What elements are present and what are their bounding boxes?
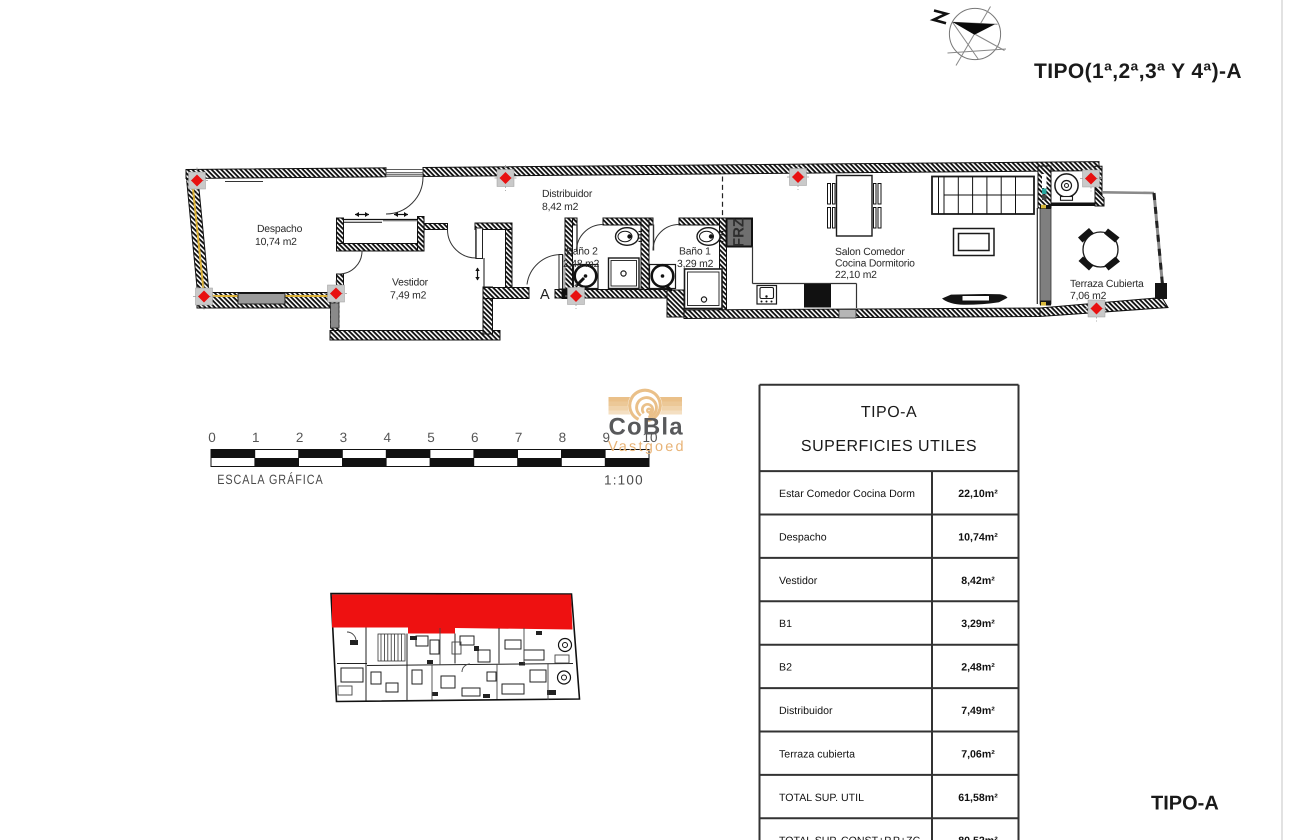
svg-text:2: 2 bbox=[296, 430, 304, 445]
svg-text:Baño 1: Baño 1 bbox=[679, 247, 711, 258]
svg-text:8: 8 bbox=[559, 430, 567, 445]
svg-text:7,49m²: 7,49m² bbox=[961, 705, 995, 717]
svg-text:B2: B2 bbox=[779, 662, 792, 674]
svg-text:6: 6 bbox=[471, 430, 479, 445]
svg-text:Cocina Dormitorio: Cocina Dormitorio bbox=[835, 259, 915, 270]
svg-text:SUPERFICIES UTILES: SUPERFICIES UTILES bbox=[801, 438, 977, 455]
svg-text:3,29 m2: 3,29 m2 bbox=[677, 259, 714, 270]
svg-text:B1: B1 bbox=[779, 618, 792, 630]
svg-text:FRZ: FRZ bbox=[731, 218, 748, 247]
svg-text:1:100: 1:100 bbox=[604, 473, 644, 488]
svg-text:Salon Comedor: Salon Comedor bbox=[835, 247, 905, 258]
svg-text:A: A bbox=[540, 287, 550, 303]
svg-text:2,48m²: 2,48m² bbox=[961, 662, 995, 674]
svg-text:TIPO-A: TIPO-A bbox=[861, 404, 917, 421]
svg-text:3: 3 bbox=[340, 430, 348, 445]
svg-text:4: 4 bbox=[383, 430, 391, 445]
svg-text:TIPO-A: TIPO-A bbox=[1151, 793, 1219, 815]
svg-text:7: 7 bbox=[515, 430, 523, 445]
svg-text:Baño 2: Baño 2 bbox=[566, 247, 598, 258]
svg-text:TIPO(1ª,2ª,3ª Y 4ª)-A: TIPO(1ª,2ª,3ª Y 4ª)-A bbox=[1034, 60, 1242, 83]
svg-text:3,29m²: 3,29m² bbox=[961, 618, 995, 630]
svg-text:2,48 m2: 2,48 m2 bbox=[563, 259, 600, 270]
svg-text:CoBla: CoBla bbox=[609, 414, 684, 441]
svg-text:TOTAL SUP. UTIL: TOTAL SUP. UTIL bbox=[779, 792, 864, 804]
svg-text:22,10m²: 22,10m² bbox=[958, 488, 998, 500]
svg-text:7,49 m2: 7,49 m2 bbox=[390, 291, 427, 302]
svg-text:Despacho: Despacho bbox=[257, 224, 303, 235]
svg-text:7,06m²: 7,06m² bbox=[961, 748, 995, 760]
svg-text:61,58m²: 61,58m² bbox=[958, 792, 998, 804]
svg-text:Distribuidor: Distribuidor bbox=[779, 705, 833, 717]
svg-text:Vastgoed: Vastgoed bbox=[608, 439, 686, 455]
svg-text:10,74 m2: 10,74 m2 bbox=[255, 237, 297, 248]
svg-text:0: 0 bbox=[208, 430, 216, 445]
svg-text:8,42 m2: 8,42 m2 bbox=[542, 202, 579, 213]
svg-text:Terraza Cubierta: Terraza Cubierta bbox=[1070, 279, 1144, 290]
svg-text:8,42m²: 8,42m² bbox=[961, 575, 995, 587]
svg-text:10,74m²: 10,74m² bbox=[958, 531, 998, 543]
svg-text:Distribuidor: Distribuidor bbox=[542, 189, 593, 200]
svg-text:TOTAL SUP. CONST+P.P+ZC: TOTAL SUP. CONST+P.P+ZC bbox=[779, 835, 921, 840]
svg-text:5: 5 bbox=[427, 430, 435, 445]
svg-text:Estar Comedor Cocina Dorm: Estar Comedor Cocina Dorm bbox=[779, 488, 915, 500]
svg-text:7,06 m2: 7,06 m2 bbox=[1070, 291, 1107, 302]
svg-text:Despacho: Despacho bbox=[779, 531, 827, 543]
svg-text:1: 1 bbox=[252, 430, 260, 445]
svg-text:80,52m²: 80,52m² bbox=[958, 835, 998, 840]
svg-text:Vestidor: Vestidor bbox=[392, 278, 429, 289]
svg-text:22,10 m2: 22,10 m2 bbox=[835, 270, 877, 281]
svg-text:ESCALA GRÁFICA: ESCALA GRÁFICA bbox=[217, 472, 323, 487]
svg-text:Vestidor: Vestidor bbox=[779, 575, 818, 587]
svg-text:Terraza cubierta: Terraza cubierta bbox=[779, 748, 855, 760]
